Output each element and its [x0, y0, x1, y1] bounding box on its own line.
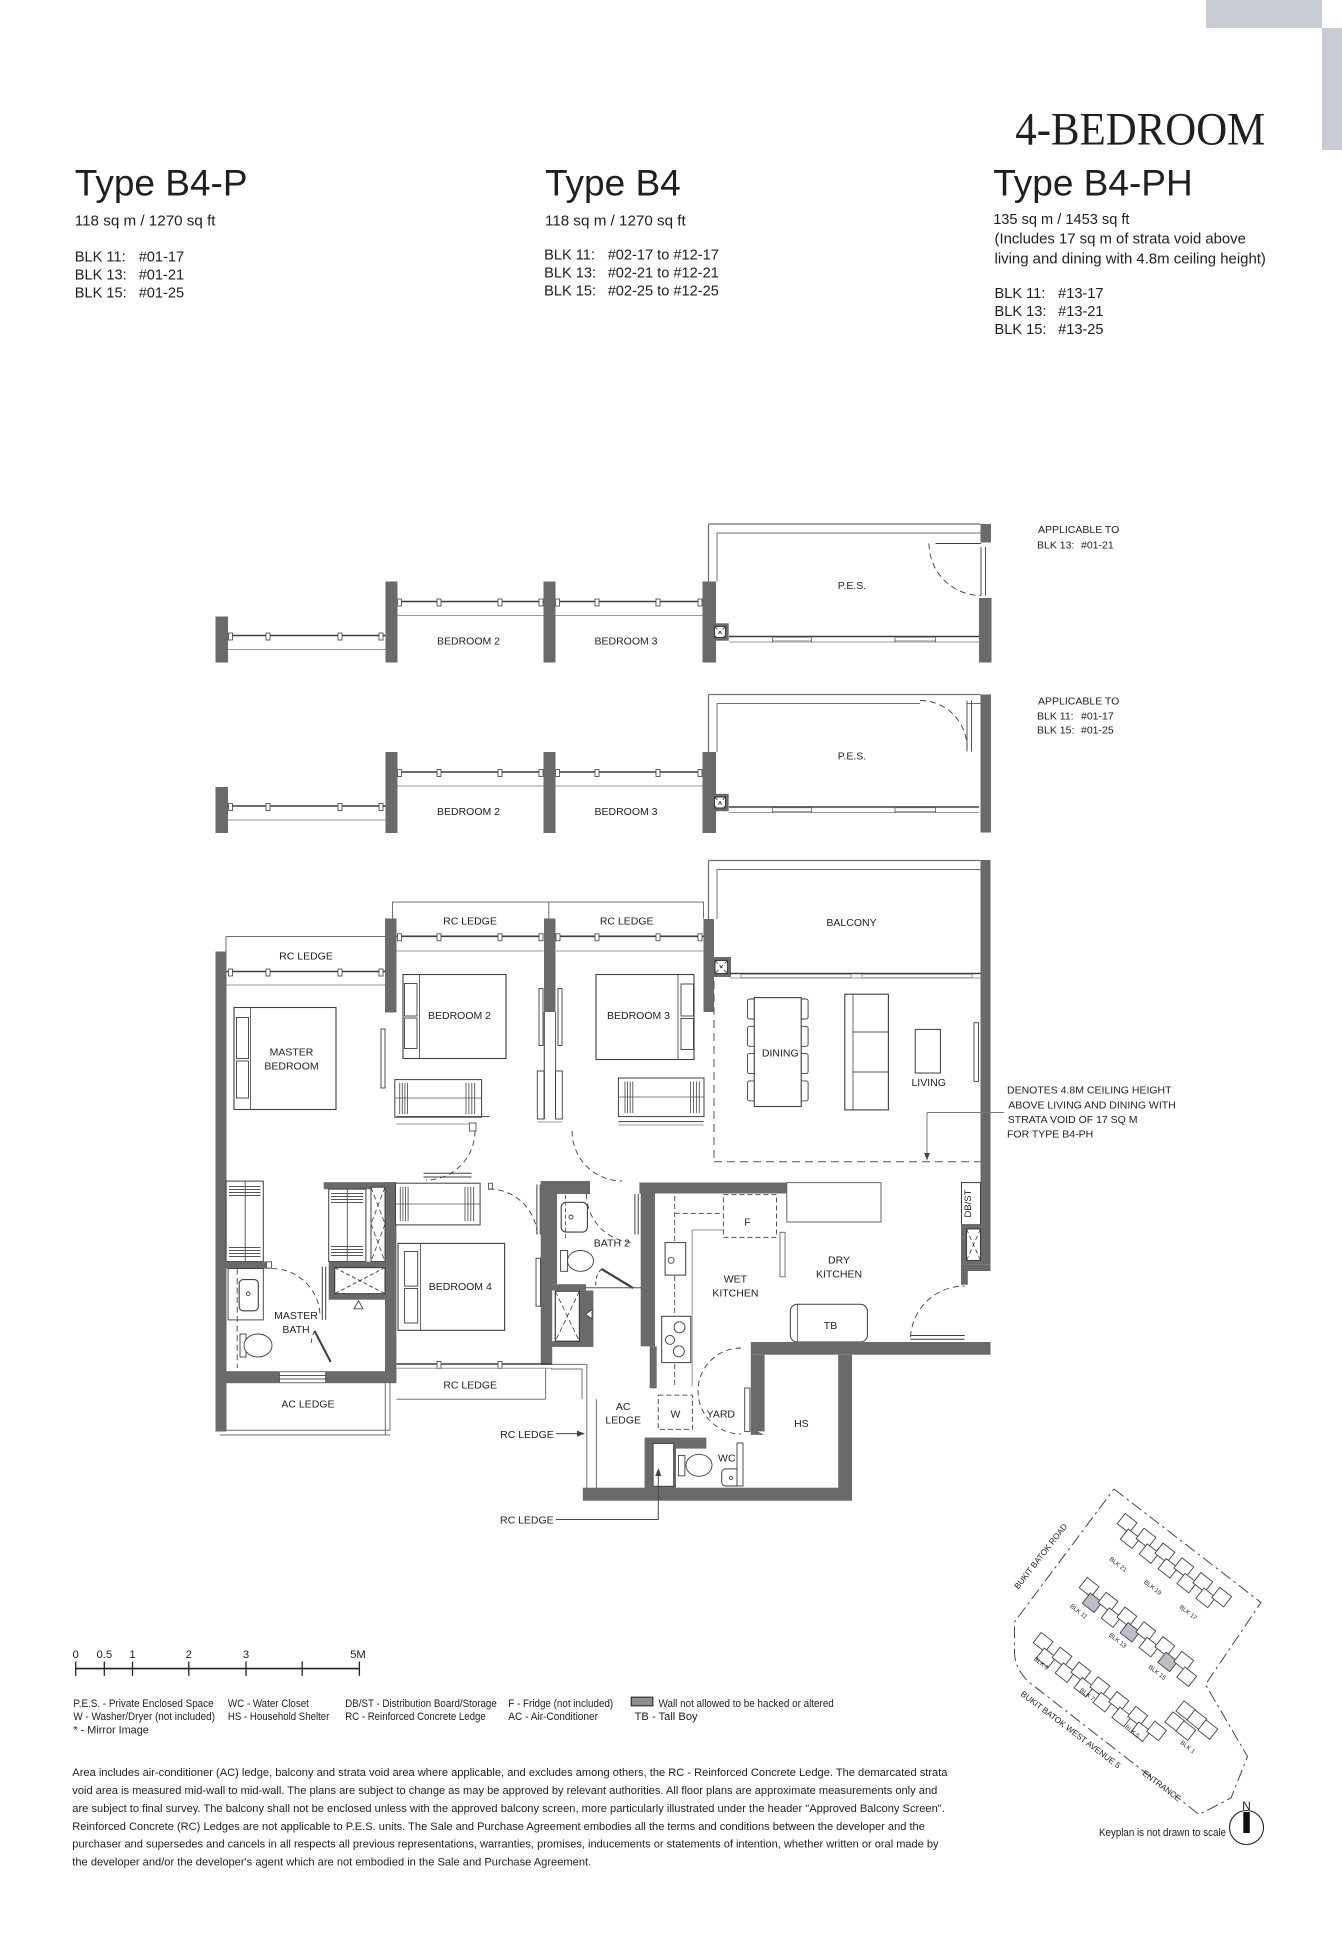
- svg-text:BLK 13:: BLK 13:: [995, 304, 1047, 320]
- svg-text:#02-25 to #12-25: #02-25 to #12-25: [608, 284, 719, 300]
- svg-text:N: N: [1242, 1799, 1251, 1813]
- svg-text:WC - Water Closet: WC - Water Closet: [228, 1698, 310, 1710]
- svg-text:2: 2: [186, 1649, 192, 1661]
- svg-text:#01-21: #01-21: [1081, 540, 1114, 552]
- svg-text:RC LEDGE: RC LEDGE: [279, 951, 333, 963]
- svg-text:#01-25: #01-25: [139, 286, 184, 302]
- svg-text:DINING: DINING: [762, 1048, 799, 1060]
- svg-text:BLK 11:: BLK 11:: [75, 250, 126, 266]
- svg-text:#13-21: #13-21: [1058, 304, 1103, 320]
- svg-text:AC LEDGE: AC LEDGE: [281, 1399, 334, 1411]
- svg-text:(Includes 17 sq m of strata vo: (Includes 17 sq m of strata void above: [995, 232, 1246, 248]
- svg-text:0: 0: [73, 1649, 79, 1661]
- svg-text:RC LEDGE: RC LEDGE: [500, 1429, 554, 1441]
- svg-text:RC LEDGE: RC LEDGE: [500, 1515, 554, 1527]
- svg-text:BATH: BATH: [282, 1324, 309, 1336]
- svg-text:TB: TB: [824, 1320, 837, 1332]
- svg-text:AC: AC: [616, 1401, 631, 1413]
- svg-text:3: 3: [243, 1649, 249, 1661]
- svg-text:#02-17 to #12-17: #02-17 to #12-17: [608, 248, 719, 264]
- svg-text:F - Fridge (not included): F - Fridge (not included): [508, 1698, 613, 1710]
- svg-text:BLK 11:: BLK 11:: [544, 248, 595, 264]
- svg-text:BLK 15:: BLK 15:: [995, 322, 1047, 338]
- svg-text:BLK 13:: BLK 13:: [544, 266, 596, 282]
- svg-text:BEDROOM: BEDROOM: [264, 1061, 318, 1073]
- svg-text:P.E.S.: P.E.S.: [838, 580, 866, 592]
- svg-text:purchaser and supersedes and c: purchaser and supersedes and cancels in …: [72, 1839, 939, 1851]
- svg-text:BEDROOM 3: BEDROOM 3: [594, 636, 657, 648]
- svg-text:ABOVE LIVING AND DINING WITH: ABOVE LIVING AND DINING WITH: [1008, 1099, 1175, 1111]
- svg-text:* - Mirror Image: * - Mirror Image: [73, 1725, 148, 1737]
- svg-text:Wall not allowed to be hacked: Wall not allowed to be hacked or altered: [659, 1698, 834, 1710]
- svg-text:1: 1: [129, 1649, 135, 1661]
- svg-text:living and dining with 4.8m ce: living and dining with 4.8m ceiling heig…: [995, 252, 1266, 268]
- svg-text:4-BEDROOM: 4-BEDROOM: [1015, 104, 1265, 156]
- svg-text:Keyplan is not drawn to scale: Keyplan is not drawn to scale: [1099, 1827, 1226, 1839]
- svg-text:118 sq m / 1270 sq ft: 118 sq m / 1270 sq ft: [545, 213, 686, 230]
- svg-text:BLK 13:: BLK 13:: [1037, 540, 1074, 552]
- svg-text:0.5: 0.5: [96, 1649, 112, 1661]
- svg-text:HS: HS: [794, 1418, 809, 1430]
- svg-text:LEDGE: LEDGE: [605, 1415, 641, 1427]
- svg-text:#02-21 to #12-21: #02-21 to #12-21: [608, 266, 719, 282]
- svg-text:APPLICABLE TO: APPLICABLE TO: [1038, 524, 1119, 536]
- svg-text:STRATA VOID OF 17 SQ M: STRATA VOID OF 17 SQ M: [1008, 1114, 1138, 1126]
- svg-text:HS - Household Shelter: HS - Household Shelter: [228, 1711, 330, 1723]
- svg-text:BATH 2: BATH 2: [594, 1237, 630, 1249]
- svg-text:DENOTES 4.8M CEILING HEIGHT: DENOTES 4.8M CEILING HEIGHT: [1007, 1085, 1172, 1097]
- svg-text:the developer and/or the devel: the developer and/or the developer's age…: [72, 1857, 591, 1869]
- svg-text:#01-25: #01-25: [1081, 725, 1114, 737]
- svg-text:BLK 11:: BLK 11:: [1037, 711, 1074, 723]
- svg-text:FOR TYPE B4-PH: FOR TYPE B4-PH: [1007, 1129, 1093, 1141]
- svg-text:WC: WC: [718, 1453, 736, 1465]
- svg-text:BEDROOM 3: BEDROOM 3: [607, 1010, 670, 1022]
- svg-text:RC LEDGE: RC LEDGE: [600, 916, 654, 928]
- svg-text:MASTER: MASTER: [274, 1310, 318, 1322]
- svg-text:5M: 5M: [350, 1649, 366, 1661]
- svg-text:Type B4-P: Type B4-P: [75, 163, 248, 204]
- svg-text:Type B4-PH: Type B4-PH: [993, 163, 1192, 204]
- svg-text:W - Washer/Dryer (not included: W - Washer/Dryer (not included): [73, 1711, 215, 1723]
- svg-text:MASTER: MASTER: [270, 1047, 314, 1059]
- svg-text:are subject to final survey. T: are subject to final survey. The balcony…: [72, 1803, 945, 1815]
- svg-text:DB/ST - Distribution Board/Sto: DB/ST - Distribution Board/Storage: [345, 1698, 497, 1710]
- svg-text:AC - Air-Conditioner: AC - Air-Conditioner: [508, 1711, 598, 1723]
- svg-text:void area is measured mid-wall: void area is measured mid-wall to mid-wa…: [72, 1785, 937, 1797]
- svg-text:118 sq m / 1270 sq ft: 118 sq m / 1270 sq ft: [75, 213, 216, 230]
- svg-text:BLK 15:: BLK 15:: [544, 284, 596, 300]
- svg-text:DB/ST: DB/ST: [963, 1189, 974, 1217]
- svg-text:Type B4: Type B4: [545, 163, 681, 204]
- svg-text:BEDROOM 2: BEDROOM 2: [437, 806, 500, 818]
- svg-text:WET: WET: [724, 1274, 748, 1286]
- svg-text:BLK 15:: BLK 15:: [75, 286, 127, 302]
- svg-text:KITCHEN: KITCHEN: [712, 1288, 758, 1300]
- svg-text:BEDROOM 4: BEDROOM 4: [429, 1281, 492, 1293]
- svg-text:BALCONY: BALCONY: [826, 917, 876, 929]
- svg-text:YARD: YARD: [707, 1409, 736, 1421]
- svg-text:135 sq m / 1453 sq ft: 135 sq m / 1453 sq ft: [993, 212, 1129, 228]
- svg-text:#01-17: #01-17: [139, 250, 184, 266]
- svg-text:#01-21: #01-21: [139, 268, 184, 284]
- svg-text:BEDROOM 3: BEDROOM 3: [594, 806, 657, 818]
- svg-text:TB - Tall Boy: TB - Tall Boy: [635, 1711, 698, 1723]
- svg-text:RC - Reinforced Concrete Ledge: RC - Reinforced Concrete Ledge: [345, 1711, 486, 1723]
- svg-text:Reinforced Concrete (RC) Ledge: Reinforced Concrete (RC) Ledges are not …: [72, 1821, 925, 1833]
- svg-text:LIVING: LIVING: [911, 1077, 945, 1089]
- svg-text:KITCHEN: KITCHEN: [816, 1269, 862, 1281]
- svg-text:#13-17: #13-17: [1058, 286, 1103, 302]
- svg-text:W: W: [670, 1409, 680, 1421]
- svg-text:#13-25: #13-25: [1058, 322, 1103, 338]
- svg-text:BLK 13:: BLK 13:: [75, 268, 127, 284]
- svg-text:Area includes air-conditioner: Area includes air-conditioner (AC) ledge…: [72, 1767, 948, 1779]
- svg-text:RC LEDGE: RC LEDGE: [443, 916, 497, 928]
- svg-text:#01-17: #01-17: [1081, 711, 1114, 723]
- svg-text:BLK 11:: BLK 11:: [995, 286, 1046, 302]
- svg-text:APPLICABLE TO: APPLICABLE TO: [1038, 696, 1119, 708]
- svg-text:F: F: [744, 1217, 750, 1229]
- svg-text:DRY: DRY: [828, 1255, 850, 1267]
- svg-text:BEDROOM 2: BEDROOM 2: [428, 1010, 491, 1022]
- svg-text:P.E.S.: P.E.S.: [838, 751, 866, 763]
- svg-text:P.E.S. - Private Enclosed Spac: P.E.S. - Private Enclosed Space: [73, 1698, 213, 1710]
- svg-text:BLK 15:: BLK 15:: [1037, 725, 1074, 737]
- svg-text:BEDROOM 2: BEDROOM 2: [437, 636, 500, 648]
- svg-text:RC LEDGE: RC LEDGE: [443, 1379, 497, 1391]
